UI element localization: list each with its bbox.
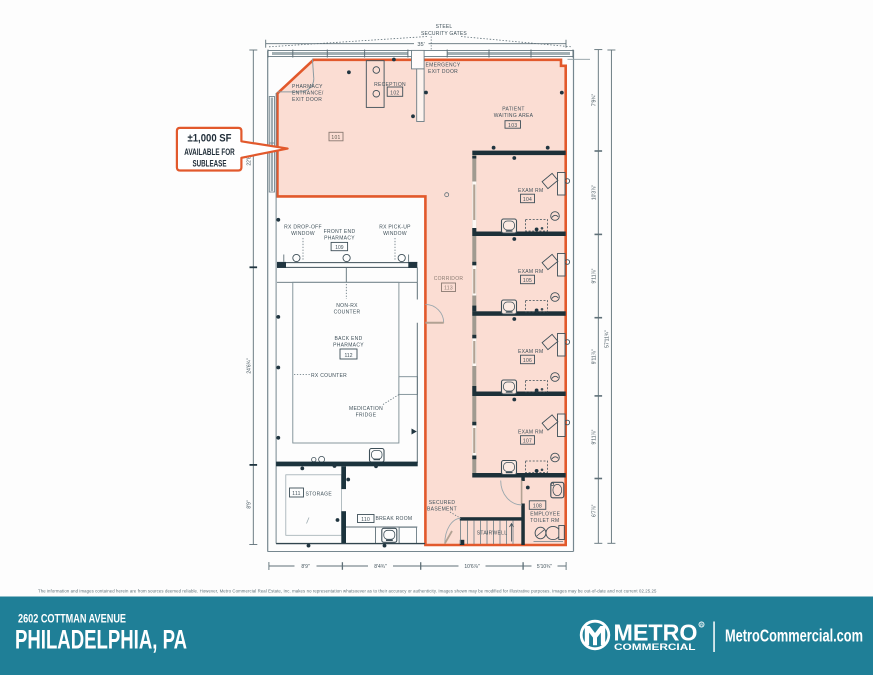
svg-text:9'11⅞": 9'11⅞" [592, 268, 598, 283]
svg-text:STORAGE: STORAGE [306, 491, 333, 497]
svg-text:WAITING AREA: WAITING AREA [494, 113, 534, 119]
svg-text:SECURITY GATES: SECURITY GATES [421, 31, 467, 37]
svg-text:MetroCommercial.com: MetroCommercial.com [725, 626, 863, 646]
svg-text:ENTRANCE/: ENTRANCE/ [292, 91, 324, 97]
svg-text:106: 106 [523, 358, 532, 364]
svg-text:5'10¾": 5'10¾" [537, 564, 552, 570]
svg-text:PHARMACY: PHARMACY [324, 235, 355, 241]
svg-text:EMERGENCY: EMERGENCY [426, 63, 461, 69]
svg-text:8'9": 8'9" [247, 500, 253, 509]
svg-text:MEDICATION: MEDICATION [349, 406, 383, 412]
svg-text:10'6⅞": 10'6⅞" [464, 564, 479, 570]
svg-text:The information and images con: The information and images contained her… [38, 589, 657, 594]
svg-text:FRONT END: FRONT END [324, 229, 356, 235]
svg-text:WINDOW: WINDOW [291, 231, 315, 237]
svg-text:WINDOW: WINDOW [383, 231, 407, 237]
svg-text:SUBLEASE: SUBLEASE [193, 159, 227, 169]
svg-text:SECURED: SECURED [429, 500, 456, 506]
svg-text:STEEL: STEEL [436, 24, 453, 30]
svg-text:BREAK ROOM: BREAK ROOM [376, 516, 413, 522]
svg-text:7'9¾": 7'9¾" [592, 94, 598, 107]
svg-text:57'11¾": 57'11¾" [605, 330, 611, 348]
svg-text:NON-RX: NON-RX [336, 303, 358, 309]
svg-text:BASEMENT: BASEMENT [427, 507, 457, 513]
svg-text:TOILET RM: TOILET RM [530, 518, 559, 524]
svg-text:EXIT DOOR: EXIT DOOR [292, 97, 322, 103]
svg-text:RX PICK-UP: RX PICK-UP [379, 225, 411, 231]
svg-text:35': 35' [417, 42, 424, 48]
svg-text:FRIDGE: FRIDGE [356, 413, 377, 419]
svg-text:101: 101 [331, 135, 340, 141]
svg-text:109: 109 [335, 245, 344, 251]
svg-text:112: 112 [345, 353, 353, 359]
svg-text:105: 105 [523, 278, 532, 284]
svg-text:±1,000 SF: ±1,000 SF [188, 132, 232, 144]
svg-text:EXAM RM: EXAM RM [518, 269, 543, 275]
svg-text:24'6¾": 24'6¾" [247, 358, 253, 373]
svg-text:113: 113 [444, 286, 453, 292]
svg-text:PHARMACY: PHARMACY [333, 343, 364, 349]
svg-text:BACK END: BACK END [335, 336, 363, 342]
svg-text:103: 103 [508, 123, 517, 129]
svg-text:AVAILABLE FOR: AVAILABLE FOR [184, 147, 235, 157]
svg-text:PHILADELPHIA, PA: PHILADELPHIA, PA [15, 625, 187, 655]
svg-text:RX DROP-OFF: RX DROP-OFF [284, 225, 322, 231]
svg-text:111: 111 [292, 491, 301, 497]
svg-text:RX COUNTER: RX COUNTER [311, 373, 347, 379]
svg-text:COMMERCIAL: COMMERCIAL [614, 642, 696, 653]
svg-text:STAIRWELL: STAIRWELL [477, 531, 508, 537]
svg-text:PHARMACY: PHARMACY [292, 84, 323, 90]
svg-text:6'7⅞": 6'7⅞" [592, 504, 598, 517]
svg-text:EMPLOYEE: EMPLOYEE [530, 512, 560, 518]
svg-text:108: 108 [533, 504, 542, 510]
svg-text:CORRIDOR: CORRIDOR [434, 276, 464, 282]
svg-text:8'9": 8'9" [301, 564, 310, 570]
svg-text:COUNTER: COUNTER [334, 310, 361, 316]
svg-text:9'11⅞": 9'11⅞" [592, 349, 598, 364]
svg-text:EXAM RM: EXAM RM [518, 349, 543, 355]
svg-text:107: 107 [523, 438, 532, 444]
svg-text:EXAM RM: EXAM RM [518, 188, 543, 194]
svg-text:R: R [700, 623, 703, 627]
svg-text:EXIT DOOR: EXIT DOOR [428, 69, 458, 75]
svg-text:104: 104 [523, 197, 532, 203]
svg-text:102: 102 [390, 90, 399, 96]
svg-text:EXAM RM: EXAM RM [518, 430, 543, 436]
svg-text:2602 COTTMAN AVENUE: 2602 COTTMAN AVENUE [18, 612, 126, 626]
svg-text:10'3⅞": 10'3⅞" [592, 185, 598, 200]
svg-text:9'11⅞": 9'11⅞" [592, 429, 598, 444]
svg-text:8'4¾": 8'4¾" [374, 564, 387, 570]
svg-text:110: 110 [361, 517, 370, 523]
svg-text:PATIENT: PATIENT [502, 107, 524, 113]
